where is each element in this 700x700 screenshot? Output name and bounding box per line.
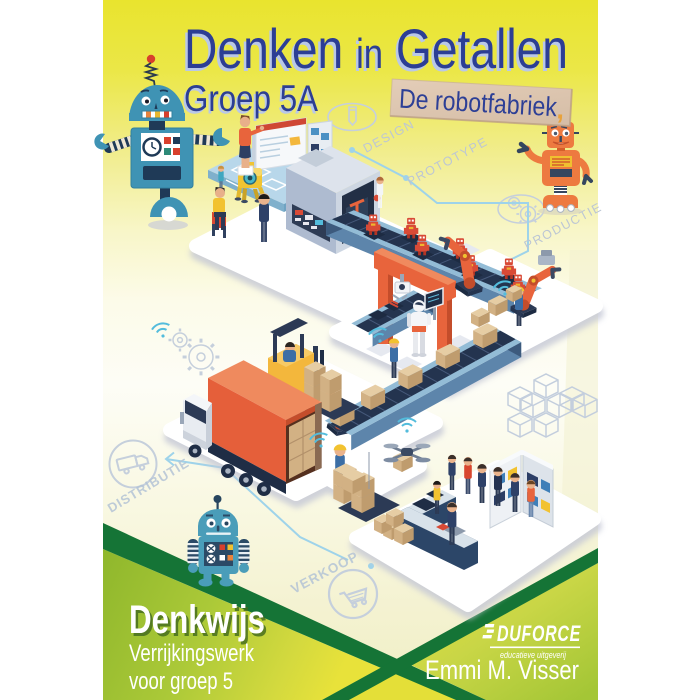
svg-text:Groep 5A: Groep 5A (184, 78, 318, 119)
svg-text:Emmi M. Visser: Emmi M. Visser (425, 655, 579, 685)
svg-text:Verrijkingswerk: Verrijkingswerk (129, 640, 255, 667)
svg-text:Denkwijs: Denkwijs (129, 598, 265, 642)
svg-text:DUFORCE: DUFORCE (497, 621, 581, 646)
svg-text:voor groep 5: voor groep 5 (129, 668, 233, 695)
